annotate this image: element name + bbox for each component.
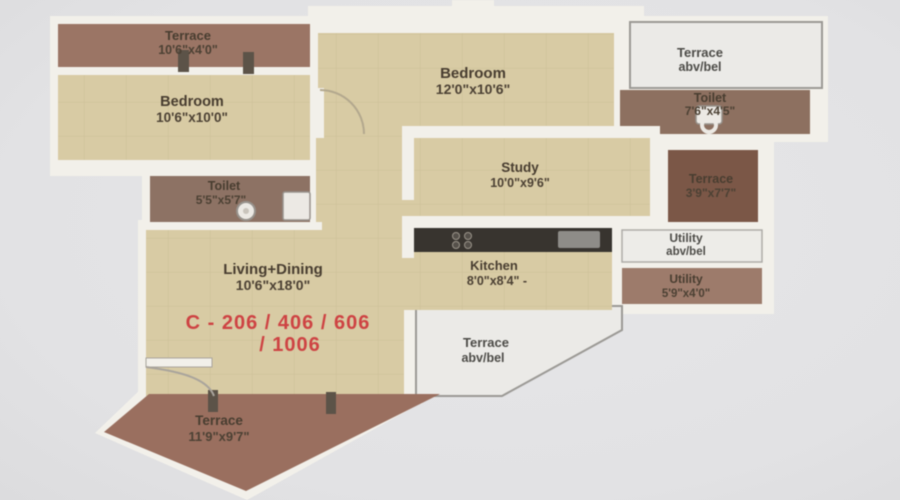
room-dims: 10'6"x18'0" bbox=[236, 277, 310, 293]
floorplan-screenshot: Terrace 10'6"x4'0" Bedroom 10'6"x10'0" B… bbox=[0, 0, 900, 500]
label-bedroom-top: Bedroom 12'0"x10'6" bbox=[436, 65, 510, 97]
room-dims: 10'0"x9'6" bbox=[490, 176, 550, 190]
room-label: Utility bbox=[669, 272, 703, 286]
wall-toilet-left-bottom bbox=[142, 222, 322, 230]
floor-passage-kitchen bbox=[404, 256, 414, 310]
terrace-abv-bottom-area bbox=[416, 306, 622, 396]
room-dims: 3'9"x7'7" bbox=[686, 186, 736, 200]
entrance-door-leaf bbox=[146, 358, 212, 367]
room-dims: 8'0"x8'4" - bbox=[467, 274, 527, 288]
room-label: Terrace bbox=[689, 172, 733, 186]
room-label: Terrace bbox=[463, 335, 509, 350]
room-label: Toilet bbox=[208, 179, 241, 193]
room-terrace-bottom bbox=[104, 394, 440, 491]
room-label: Kitchen bbox=[470, 258, 518, 273]
room-dims: 11'9"x9'7" bbox=[188, 429, 249, 444]
sink-icon bbox=[558, 231, 600, 248]
room-label: Living+Dining bbox=[223, 261, 323, 278]
room-dims: 10'6"x4'0" bbox=[158, 43, 218, 57]
label-terrace-right: Terrace 3'9"x7'7" bbox=[686, 172, 736, 200]
label-living-dining: Living+Dining 10'6"x18'0" bbox=[223, 261, 323, 293]
door-post bbox=[243, 52, 254, 74]
unit-number-line1: C - 206 / 406 / 606 bbox=[186, 312, 371, 334]
shower-tray-icon bbox=[283, 192, 310, 220]
wall-kitchen-top bbox=[402, 216, 664, 228]
wall-stub-corridor bbox=[312, 88, 324, 138]
label-terrace-abv-top: Terrace abv/bel bbox=[677, 45, 723, 74]
room-label: Bedroom bbox=[440, 65, 506, 82]
room-dims: 7'6"x4'5" bbox=[685, 104, 735, 118]
room-dims: abv/bel bbox=[678, 60, 721, 74]
door-post bbox=[326, 392, 336, 414]
room-label: Utility bbox=[669, 231, 703, 245]
room-label: Toilet bbox=[694, 91, 727, 105]
wall-kitchen-left bbox=[402, 216, 414, 258]
wall-notch-top bbox=[452, 0, 494, 30]
label-bedroom-left: Bedroom 10'6"x10'0" bbox=[156, 94, 228, 125]
label-terrace-top-left: Terrace 10'6"x4'0" bbox=[158, 28, 218, 57]
room-dims: 12'0"x10'6" bbox=[436, 81, 510, 97]
apartment-floorplan: Terrace 10'6"x4'0" Bedroom 10'6"x10'0" B… bbox=[0, 0, 900, 500]
label-terrace-bottom: Terrace 11'9"x9'7" bbox=[188, 413, 249, 444]
room-dims: abv/bel bbox=[461, 351, 504, 365]
room-dims: 5'5"x5'7" bbox=[196, 193, 246, 207]
room-dims: 5'9"x4'0" bbox=[662, 288, 710, 300]
room-label: Terrace bbox=[165, 28, 211, 43]
washbasin-drain-icon bbox=[243, 208, 249, 214]
wall-study-left bbox=[402, 128, 414, 200]
terrace-abv-top-area bbox=[630, 22, 822, 88]
room-dims: 10'6"x10'0" bbox=[156, 110, 228, 125]
floor-door-gap-study bbox=[402, 198, 414, 218]
room-label: Bedroom bbox=[160, 94, 224, 110]
room-label: Study bbox=[501, 160, 539, 175]
label-utility-abv: Utility abv/bel bbox=[666, 231, 706, 258]
room-dims: abv/bel bbox=[666, 246, 706, 258]
wall-study-top bbox=[402, 126, 660, 138]
room-label: Terrace bbox=[195, 413, 243, 428]
room-label: Terrace bbox=[677, 45, 723, 60]
unit-number-line2: / 1006 bbox=[259, 334, 321, 356]
kitchen-counter bbox=[414, 228, 612, 252]
